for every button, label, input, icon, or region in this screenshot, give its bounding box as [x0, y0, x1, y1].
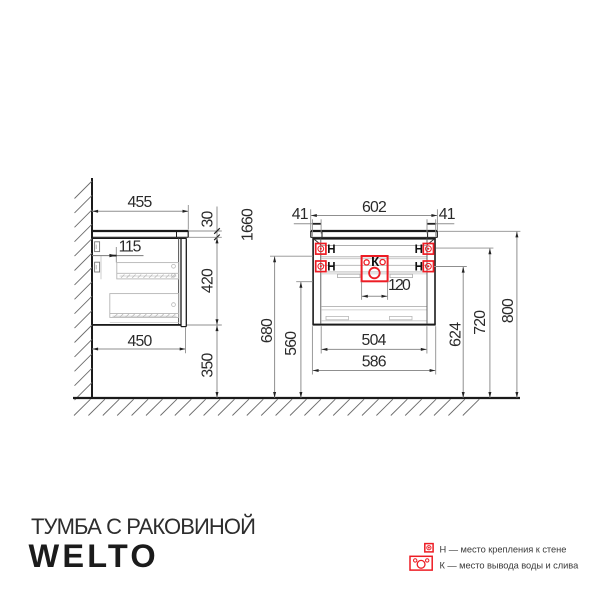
svg-text:455: 455 — [127, 194, 152, 211]
svg-text:ТУМБА С РАКОВИНОЙ: ТУМБА С РАКОВИНОЙ — [31, 514, 255, 539]
svg-text:350: 350 — [200, 352, 217, 377]
svg-text:586: 586 — [362, 353, 387, 370]
svg-text:560: 560 — [283, 331, 300, 356]
svg-text:30: 30 — [200, 211, 217, 228]
svg-text:Н: Н — [415, 244, 423, 256]
svg-text:120: 120 — [388, 277, 411, 294]
svg-text:800: 800 — [500, 298, 517, 323]
svg-text:К: К — [371, 254, 380, 269]
svg-text:WELTO: WELTO — [29, 538, 159, 574]
svg-text:Н: Н — [327, 244, 335, 256]
svg-text:624: 624 — [447, 322, 464, 347]
svg-text:Н — место крепления к стене: Н — место крепления к стене — [440, 544, 567, 554]
svg-text:420: 420 — [200, 268, 217, 293]
svg-text:1660: 1660 — [239, 208, 256, 241]
svg-text:720: 720 — [472, 310, 489, 335]
svg-text:680: 680 — [259, 318, 276, 343]
svg-text:41: 41 — [292, 206, 309, 223]
svg-text:41: 41 — [439, 206, 456, 223]
svg-text:115: 115 — [119, 238, 142, 255]
svg-text:504: 504 — [362, 332, 387, 349]
svg-text:Н: Н — [327, 262, 335, 274]
svg-text:Н: Н — [415, 262, 423, 274]
svg-text:450: 450 — [127, 333, 152, 350]
svg-text:602: 602 — [362, 199, 386, 216]
svg-text:К — место вывода воды и слива: К — место вывода воды и слива — [440, 560, 580, 570]
